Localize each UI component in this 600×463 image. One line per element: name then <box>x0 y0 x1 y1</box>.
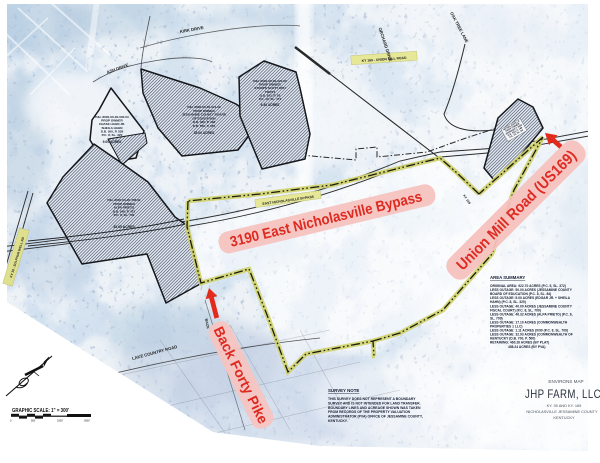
svg-text:500: 500 <box>31 420 36 423</box>
svg-text:JHP FARM, LLC: JHP FARM, LLC <box>525 387 600 401</box>
svg-text:35.00 ACRES: 35.00 ACRES <box>194 131 215 135</box>
svg-text:D.B. 550, P. 555: D.B. 550, P. 555 <box>193 124 216 128</box>
svg-text:458.24 ACRES (BY PVA): 458.24 ACRES (BY PVA) <box>508 345 546 349</box>
svg-text:ADMINISTRATOR (PVA) OFFICE OF: ADMINISTRATOR (PVA) OFFICE OF JESSAMINE … <box>328 415 423 419</box>
svg-text:0: 0 <box>10 420 12 423</box>
svg-text:THIS SURVEY DOES NOT REPRESENT: THIS SURVEY DOES NOT REPRESENT A BOUNDAR… <box>328 397 416 401</box>
svg-text:P.C. 8, SL. 709: P.C. 8, SL. 709 <box>114 213 135 217</box>
svg-text:1500': 1500' <box>57 420 64 423</box>
svg-text:NICHOLASVILLE JESSAMINE COUN: NICHOLASVILLE JESSAMINE COUNTY <box>526 409 598 414</box>
svg-text:45.65 ACRES: 45.65 ACRES <box>113 225 135 229</box>
svg-text:AREA SUMMARY: AREA SUMMARY <box>490 275 525 280</box>
svg-text:6.36 ACRES: 6.36 ACRES <box>261 103 281 107</box>
svg-text:KENTUCKY: KENTUCKY <box>553 415 575 420</box>
svg-text:GRAPHIC SCALE: 1" = 300': GRAPHIC SCALE: 1" = 300' <box>12 408 69 414</box>
svg-text:ENVIRONS MAP: ENVIRONS MAP <box>548 379 583 384</box>
svg-text:P.C. 8, SL. 320: P.C. 8, SL. 320 <box>102 133 123 137</box>
svg-text:SURVEY AND IS NOT INTENDED FOR: SURVEY AND IS NOT INTENDED FOR LAND TRAN… <box>328 401 421 405</box>
svg-text:3000': 3000' <box>84 420 91 423</box>
svg-text:KY. 39 AND KY. 169: KY. 39 AND KY. 169 <box>547 403 582 408</box>
svg-text:KENTUCKY.: KENTUCKY. <box>328 419 348 423</box>
svg-text:9.00 ACRES: 9.00 ACRES <box>103 140 123 144</box>
svg-text:SURVEY NOTE: SURVEY NOTE <box>328 388 359 393</box>
svg-text:BOUNDARY LINES AND ACREAGE SHO: BOUNDARY LINES AND ACREAGE SHOWN WAS TAK… <box>328 406 421 410</box>
svg-text:P.C. 10, SL. 174: P.C. 10, SL. 174 <box>259 97 282 101</box>
svg-text:FROM RECORDS OF THE PROPERTY V: FROM RECORDS OF THE PROPERTY VALUATION <box>328 410 411 414</box>
